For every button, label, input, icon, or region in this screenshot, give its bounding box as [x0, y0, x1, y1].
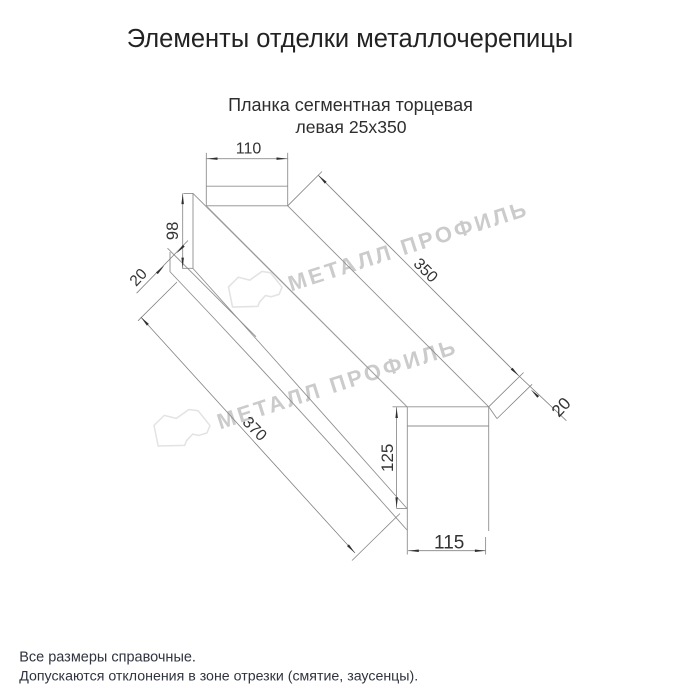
- svg-text:20: 20: [127, 265, 151, 289]
- svg-text:115: 115: [434, 533, 464, 554]
- svg-text:Планка сегментная торцевая: Планка сегментная торцевая: [228, 95, 473, 115]
- svg-text:20: 20: [548, 394, 575, 421]
- svg-text:98: 98: [164, 222, 182, 240]
- svg-text:Допускаются отклонения в зоне: Допускаются отклонения в зоне отрезки (с…: [19, 669, 418, 685]
- svg-text:125: 125: [378, 444, 397, 472]
- svg-text:110: 110: [236, 141, 262, 158]
- svg-text:Элементы отделки металлочерепи: Элементы отделки металлочерепицы: [127, 25, 573, 53]
- svg-text:МЕТАЛЛ ПРОФИЛЬ: МЕТАЛЛ ПРОФИЛЬ: [285, 196, 532, 297]
- svg-text:350: 350: [410, 255, 441, 286]
- svg-text:Все размеры справочные.: Все размеры справочные.: [19, 650, 196, 666]
- svg-text:левая 25x350: левая 25x350: [295, 117, 406, 137]
